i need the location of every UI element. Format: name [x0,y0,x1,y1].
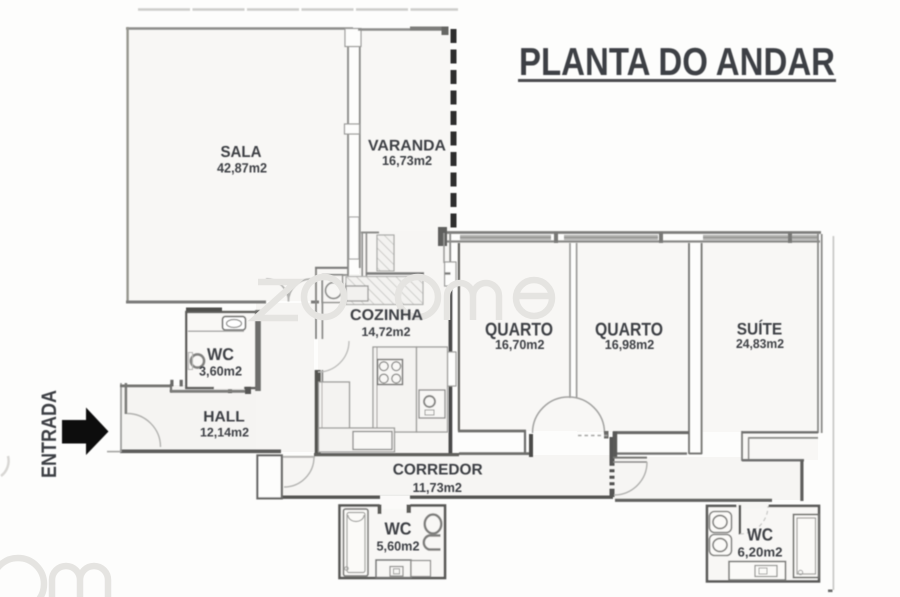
svg-text:24,83m2: 24,83m2 [736,336,784,351]
svg-text:16,73m2: 16,73m2 [382,153,432,168]
svg-text:3,60m2: 3,60m2 [199,363,242,378]
svg-text:14,72m2: 14,72m2 [362,325,411,339]
svg-text:11,73m2: 11,73m2 [413,480,462,495]
svg-text:SALA: SALA [221,144,262,161]
svg-text:12,14m2: 12,14m2 [200,426,249,440]
svg-text:COZINHA: COZINHA [350,307,423,324]
svg-text:PLANTA DO ANDAR: PLANTA DO ANDAR [519,41,835,84]
svg-text:CORREDOR: CORREDOR [393,462,483,479]
svg-text:42,87m2: 42,87m2 [217,161,267,176]
svg-text:5,60m2: 5,60m2 [377,539,420,554]
svg-text:VARANDA: VARANDA [368,138,446,155]
svg-text:HALL: HALL [203,409,245,426]
svg-text:WC: WC [207,345,234,364]
svg-text:WC: WC [385,519,412,539]
svg-text:16,98m2: 16,98m2 [605,337,655,352]
svg-text:6,20m2: 6,20m2 [738,545,783,560]
svg-text:WC: WC [747,525,773,545]
svg-text:ENTRADA: ENTRADA [38,390,61,478]
svg-text:16,70m2: 16,70m2 [495,337,545,352]
